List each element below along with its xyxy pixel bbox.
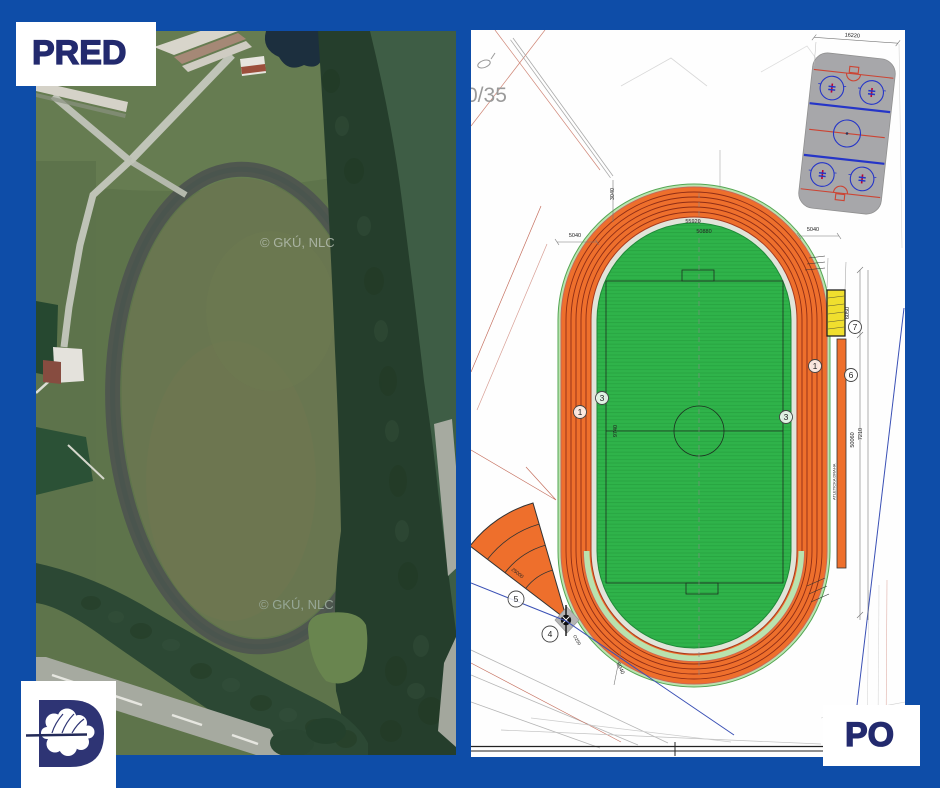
svg-text:1: 1 [813, 361, 818, 371]
svg-text:3: 3 [784, 412, 789, 422]
svg-text:50060: 50060 [850, 432, 856, 447]
svg-text:7: 7 [853, 322, 858, 332]
svg-text:1: 1 [578, 407, 583, 417]
svg-text:50880: 50880 [696, 229, 711, 235]
svg-text:3: 3 [600, 393, 605, 403]
svg-text:ATLETICKA DRAHA: ATLETICKA DRAHA [832, 463, 837, 500]
svg-text:9740: 9740 [613, 425, 619, 437]
svg-text:6050: 6050 [845, 307, 851, 319]
svg-text:5040: 5040 [569, 233, 581, 239]
svg-text:7210: 7210 [858, 428, 864, 440]
svg-text:© GKÚ, NLC: © GKÚ, NLC [260, 235, 335, 250]
svg-text:6: 6 [849, 370, 854, 380]
svg-text:5040: 5040 [807, 227, 819, 233]
svg-text:© GKÚ, NLC: © GKÚ, NLC [259, 597, 334, 612]
svg-text:5: 5 [514, 594, 519, 604]
svg-text:16220: 16220 [844, 32, 860, 39]
svg-text:0/35: 0/35 [471, 84, 507, 107]
svg-text:4: 4 [548, 629, 553, 639]
svg-text:55920: 55920 [685, 219, 700, 225]
